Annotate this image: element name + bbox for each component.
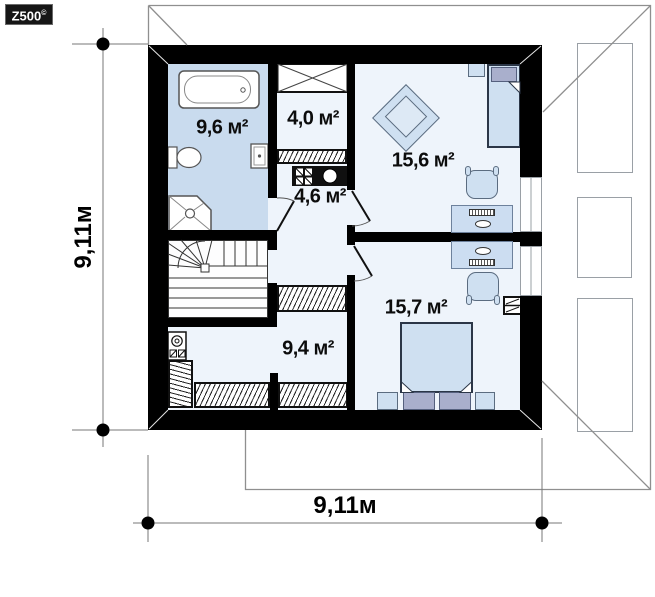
room-label-room-lower-left: 9,4 м²	[282, 338, 334, 361]
copyright-icon: ©	[41, 10, 46, 17]
desk-lower	[451, 241, 513, 269]
room-label-wardrobe: 4,0 м²	[287, 108, 339, 131]
door-arc-bedroom-lower	[354, 246, 372, 281]
brand-text: Z500	[12, 8, 42, 23]
desk-upper	[451, 205, 513, 233]
keyboard-icon	[469, 209, 495, 216]
room-label-hall: 4,6 м²	[294, 186, 346, 209]
mouse-icon	[475, 220, 491, 228]
door-arc-bedroom-upper	[352, 191, 370, 226]
staircase	[168, 240, 268, 318]
dimension-label-bottom: 9,11м	[313, 492, 376, 520]
dimension-label-left: 9,11м	[70, 205, 98, 268]
room-label-bedroom-lower: 15,7 м²	[385, 297, 447, 320]
brand-logo: Z500©	[5, 4, 53, 25]
wall-corner-miters	[149, 46, 541, 429]
room-label-bedroom-upper: 15,6 м²	[392, 150, 454, 173]
room-label-bathroom: 9,6 м²	[196, 117, 248, 140]
floor-plan: Z500©	[0, 0, 655, 597]
bed-fold-corners	[402, 82, 521, 393]
mouse-icon	[475, 247, 491, 255]
door-arc-bathroom	[277, 198, 294, 231]
keyboard-icon	[469, 259, 495, 266]
